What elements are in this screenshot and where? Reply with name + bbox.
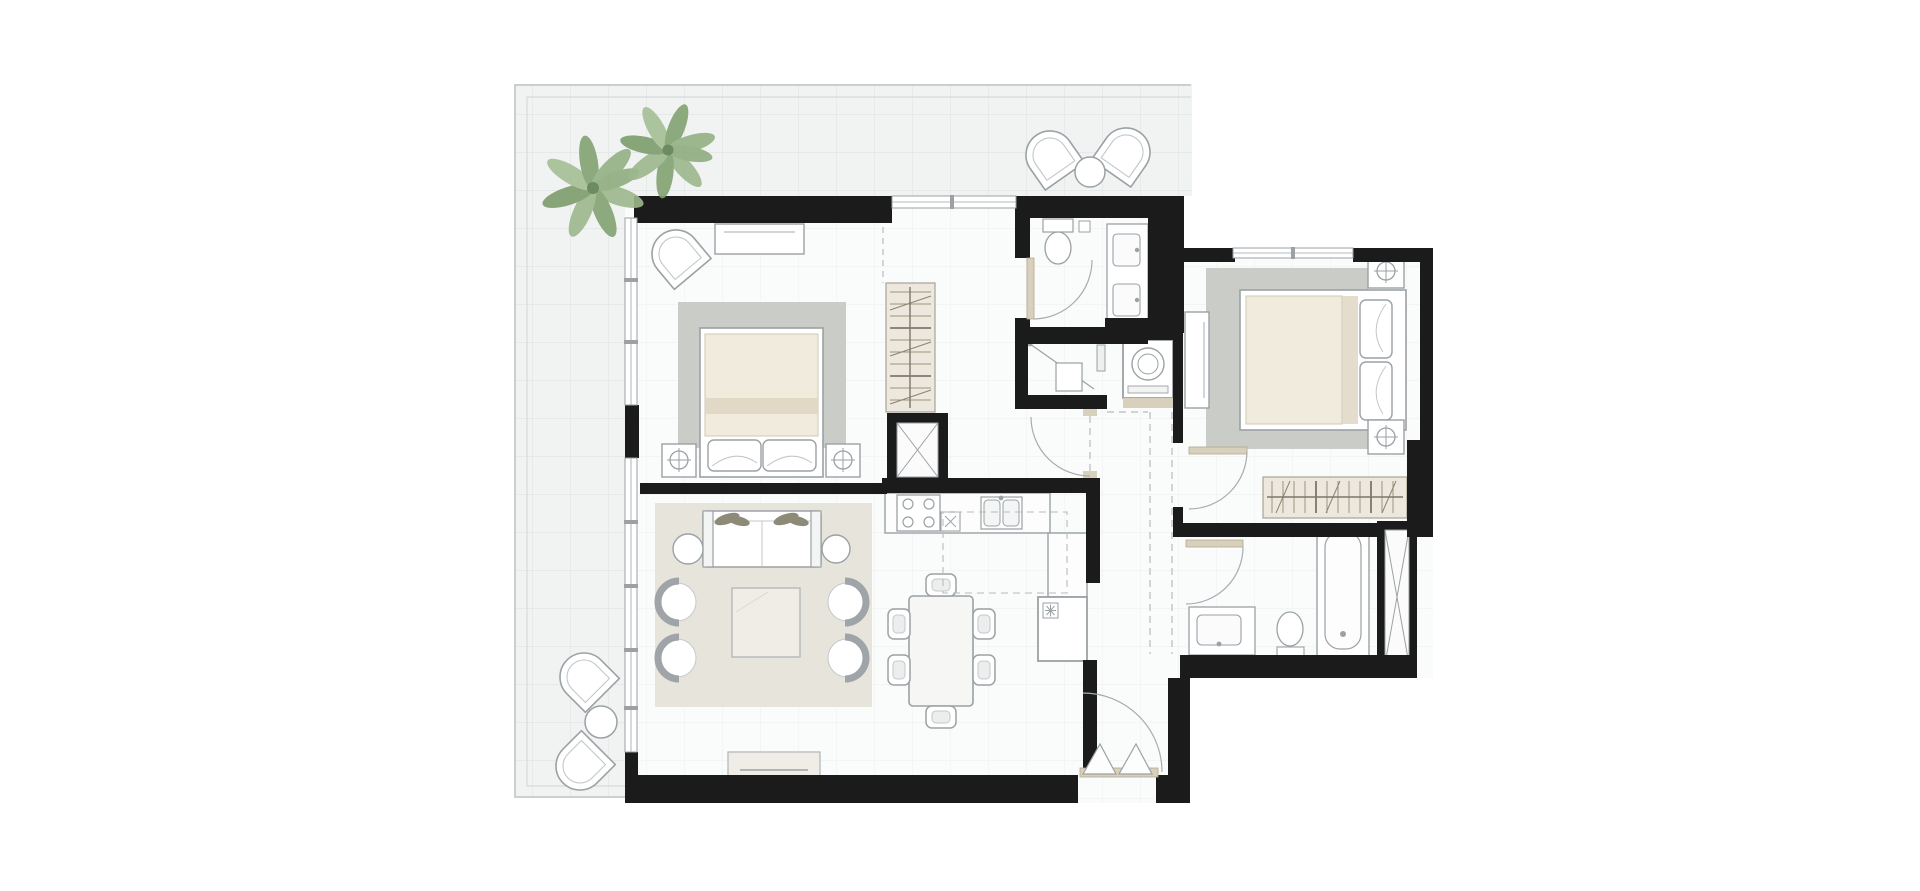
floor-plan-svg — [0, 0, 1920, 891]
dining-table — [909, 596, 973, 706]
wall-bed2-top-left — [1183, 248, 1235, 262]
kitchen-counter-leg — [1048, 533, 1087, 597]
dining-chair — [888, 655, 910, 685]
washer-plinth — [1123, 398, 1173, 408]
coffee-table — [732, 588, 800, 657]
wall-bottom-left-corner — [625, 752, 638, 776]
faucet-dot — [1135, 298, 1139, 302]
wall-left-segment — [625, 405, 639, 458]
window-left-upper — [624, 218, 638, 405]
dining-chair — [973, 609, 995, 639]
wall-vestibule-right — [1168, 678, 1190, 778]
bedroom2-cabinet — [1185, 312, 1209, 408]
wall-washer-top — [1105, 318, 1183, 340]
wall-bottom-right — [1156, 775, 1190, 803]
window-left-lower — [624, 458, 638, 752]
dining-chair — [973, 655, 995, 685]
dining-chair — [926, 574, 956, 596]
sink-basin-right — [1003, 500, 1019, 526]
faucet-dot — [1135, 248, 1139, 252]
wall-right-chunk — [1407, 440, 1433, 537]
shower-glass-door — [1097, 345, 1105, 371]
wall-bed2-left-lower — [1173, 507, 1183, 537]
sofa-arm-left — [703, 511, 713, 567]
master-console — [715, 224, 804, 254]
master-pillow-right — [763, 440, 816, 471]
wall-bath2-bottom — [1180, 655, 1417, 678]
sofa-arm-right — [811, 511, 821, 567]
terrace-round-table — [1075, 157, 1105, 187]
toilet-bowl — [1045, 232, 1071, 264]
shower-tray — [1056, 363, 1082, 391]
window-top-dressing — [892, 195, 1016, 209]
wall-shower-bottom — [1015, 395, 1107, 409]
floor-plan-page — [0, 0, 1920, 891]
wall-above-kitchen — [882, 478, 1100, 493]
bedroom2-mattress — [1246, 296, 1342, 424]
wall-top-bath — [1016, 196, 1184, 218]
dining-chair — [926, 706, 956, 728]
dining-chair — [888, 609, 910, 639]
side-table-left — [673, 534, 703, 564]
snowflake-icon — [1043, 603, 1058, 618]
wall-kitchen-right — [1086, 478, 1100, 583]
master-pillow-left — [708, 440, 761, 471]
wall-master-living-divider — [640, 483, 887, 494]
side-table-right — [822, 535, 850, 563]
wall-top-master — [634, 196, 892, 223]
wall-bed2-left-upper — [1173, 333, 1183, 443]
media-console — [728, 752, 820, 776]
bath2-sink — [1197, 615, 1241, 645]
wall-bath1-left-upper — [1015, 206, 1030, 258]
laundry-niche — [1123, 340, 1173, 408]
faucet-dot — [999, 496, 1004, 501]
bedroom2-wardrobe — [1263, 477, 1407, 518]
master-bed-mattress — [705, 334, 818, 436]
toilet-tank — [1043, 219, 1073, 232]
wall-shower-left — [1015, 344, 1028, 395]
sink-basin-left — [984, 500, 1000, 526]
master-bed-fold — [705, 398, 818, 414]
cooktop — [897, 495, 940, 531]
bathtub-drain — [1340, 631, 1346, 637]
washer-controls — [1128, 386, 1168, 393]
bath2-toilet-bowl — [1277, 612, 1303, 646]
tp-holder — [1079, 221, 1090, 232]
window-bedroom2-top — [1233, 247, 1353, 259]
wall-bed2-right — [1420, 248, 1433, 444]
wall-bath2-top — [1183, 523, 1377, 537]
wall-bottom-main — [625, 775, 1078, 803]
bath2-toilet-tank — [1277, 647, 1304, 656]
faucet-dot — [1217, 642, 1222, 647]
terrace-round-table — [585, 706, 617, 738]
bedroom2-fold — [1342, 296, 1358, 424]
wall-bath1-right — [1148, 218, 1184, 333]
